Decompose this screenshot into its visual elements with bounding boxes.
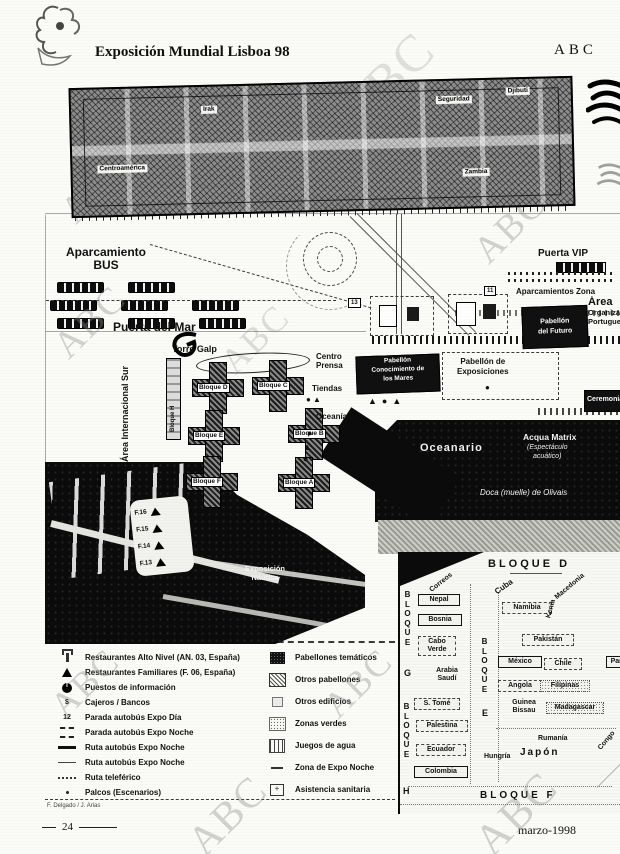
bloque-d-inset-map: BLOQUE D BLOQUE G BLOQUE H BLOQUE E Corr… xyxy=(398,552,620,814)
country-macedonia: Macedonia xyxy=(551,570,588,603)
bloque-c-label: Bloque C xyxy=(257,381,290,391)
footer-dash xyxy=(42,827,56,828)
bus-stop-night-icon xyxy=(57,727,77,738)
info-circle-icon: ● xyxy=(485,383,490,392)
bloque-d-label: Bloque D xyxy=(197,383,230,393)
country-ecuador: Ecuador xyxy=(416,744,466,756)
country-palestina: Palestina xyxy=(416,720,468,732)
inset-street xyxy=(496,728,616,729)
acqua-matrix-label: Acqua Matrix xyxy=(523,432,576,442)
pabellon-exposiciones-line2: Exposiciones xyxy=(457,367,509,377)
bloque-d-title: BLOQUE D xyxy=(488,558,570,570)
other-building-icon xyxy=(267,697,287,707)
country-madagascar: Madagascar xyxy=(546,702,604,714)
bloque-letter-e: E xyxy=(482,708,488,718)
info-circle-icon: ● xyxy=(307,428,312,438)
restaurant-triangle-icon xyxy=(154,540,165,549)
bloque-c-building: Bloque C xyxy=(252,360,304,412)
organizacion-label: Área Organización Portuguesa xyxy=(588,296,620,326)
organizacion-line2: Organización xyxy=(588,308,620,317)
bloque-vertical-lower: BLOQUE xyxy=(402,702,411,759)
north-area-inner-border xyxy=(83,87,561,207)
shore-texture xyxy=(378,520,620,554)
info-circle-icon: ● xyxy=(303,454,308,464)
country-colombia: Colombia xyxy=(414,766,468,778)
building-dark xyxy=(483,304,496,319)
country-panama: Panamá xyxy=(606,656,620,668)
bloque-vertical-left: BLOQUE xyxy=(403,590,412,647)
ceremonias-box: Ceremonias xyxy=(584,390,620,412)
building-dark xyxy=(407,307,419,321)
bloque-letter-h: H xyxy=(403,786,410,796)
map-label-djibuti: Djibuti xyxy=(506,86,530,95)
centro-prensa-label: Centro Prensa xyxy=(316,352,343,370)
nautica-line1: Exposición xyxy=(245,564,285,573)
expo98-logo-faint xyxy=(596,160,620,204)
map-label-seguridad: Seguridad xyxy=(436,95,472,104)
parking-row xyxy=(508,279,614,282)
country-rumania: Rumanía xyxy=(536,734,570,744)
legend-label: Zona de Expo Noche xyxy=(295,763,374,772)
country-mexico: México xyxy=(498,656,542,668)
bloque-e-building: Bloque E xyxy=(188,410,240,462)
country-correos: Correos xyxy=(426,570,456,597)
thick-route-line-icon xyxy=(57,746,77,750)
pier-row: F.13 xyxy=(139,550,191,572)
legend-row: Zonas verdes xyxy=(267,717,347,730)
pabellon-conocimiento-box: Pabellón Conocimiento de los Mares xyxy=(355,354,440,395)
bloque-h-strip-label: Bloque H xyxy=(170,406,176,432)
bloque-a-label: Bloque A xyxy=(283,478,315,488)
oceania-label: Oceanía xyxy=(316,412,347,421)
pabellon-futuro-box: Pabellón del Futuro xyxy=(521,305,588,349)
pabellon-exposiciones-outline: Pabellón de Exposiciones ● xyxy=(442,352,559,400)
acqua-matrix-sub1: (Espectáculo xyxy=(527,444,567,451)
expo98-logo xyxy=(586,78,620,136)
water-games-icon xyxy=(267,739,287,753)
centro-prensa-line1: Centro xyxy=(316,352,343,361)
bloque-d-underline xyxy=(510,573,562,574)
legend-row: Ruta teleférico xyxy=(57,771,141,784)
country-hungria: Hungría xyxy=(482,752,512,762)
tiendas-label: Tiendas xyxy=(312,384,342,393)
newspaper-page: ABC ABC ABC ABC ABC ABC ABC ABC ABC Expo… xyxy=(0,0,620,854)
pabellon-conocimiento-line3: los Mares xyxy=(357,373,439,385)
legend-label: Ruta autobús Expo Noche xyxy=(85,758,185,767)
map-credit: F. Delgado / J. Arias xyxy=(47,803,100,809)
abc-masthead: ABC xyxy=(554,42,597,59)
torre-galp-label: Torre Galp xyxy=(172,344,217,354)
inset-street xyxy=(470,584,471,784)
bloque-f-label: Bloque F xyxy=(191,477,223,487)
country-pakistan: Pakistán xyxy=(522,634,574,646)
legend-label: Ruta autobús Expo Noche xyxy=(85,743,185,752)
page-number: 24 xyxy=(62,821,73,833)
country-filipinas: Filipinas xyxy=(540,680,590,692)
legend-label: Asistencia sanitaria xyxy=(295,785,370,794)
road-number-box: 13 xyxy=(348,298,361,308)
restaurant-triangle-icon: ▲ xyxy=(303,442,312,452)
legend-row: Ruta autobús Expo Noche xyxy=(57,756,185,769)
acqua-matrix-sub2: acuático) xyxy=(533,453,561,460)
country-arabia-saudi: Arabia Saudí xyxy=(424,666,470,684)
exposicion-nautica-label: Exposición Náutica xyxy=(245,564,285,582)
corner-stamp xyxy=(30,2,92,74)
map-label-irak: Irak xyxy=(201,105,217,113)
restaurant-triangle-icon xyxy=(150,507,161,516)
pabellon-exposiciones-line1: Pabellón de xyxy=(457,357,509,367)
country-japon: Japón xyxy=(518,748,561,758)
pier-f15-label: F.15 xyxy=(136,525,149,533)
page-title: Exposición Mundial Lisboa 98 xyxy=(95,44,290,61)
bloque-e-label: Bloque E xyxy=(193,431,225,441)
country-nepal: Nepal xyxy=(418,594,460,606)
area-internacional-sur-label: Área Internacional Sur xyxy=(120,366,130,462)
cable-car-route-icon xyxy=(57,777,77,779)
restaurant-triangle-icon xyxy=(152,523,163,532)
bloque-letter-g: G xyxy=(404,668,411,678)
organizacion-line1: Área xyxy=(588,296,620,308)
map-label-centroamerica: Centroamérica xyxy=(97,164,147,173)
legend-row: Asistencia sanitaria xyxy=(267,783,370,796)
roundabout-arc xyxy=(286,222,374,310)
legend-row: Palcos (Escenarios) xyxy=(57,786,161,799)
thin-route-line-icon xyxy=(57,762,77,764)
legend-label: Parada autobús Expo Noche xyxy=(85,728,193,737)
thematic-pavilion-icon xyxy=(267,652,287,664)
info-circle-icon: ● ▲ xyxy=(306,395,321,404)
legend-row: Juegos de agua xyxy=(267,739,355,752)
parking-row xyxy=(508,272,614,275)
restaurant-symbols-row: ▲●▲ xyxy=(368,396,406,406)
north-area-map: Irak Centroamérica Seguridad Djibuti Zam… xyxy=(68,76,575,218)
country-cabo-verde: Cabo Verde xyxy=(418,636,456,656)
pier xyxy=(163,594,366,635)
map-label-zambia: Zambia xyxy=(463,168,490,177)
road-number-box: 11 xyxy=(484,286,496,296)
legend-row: Parada autobús Expo Noche xyxy=(57,726,193,739)
bloque-vertical-mid: BLOQUE xyxy=(480,637,489,694)
centro-prensa-line2: Prensa xyxy=(316,361,343,370)
legend-label: Palcos (Escenarios) xyxy=(85,788,161,797)
legend-label: Ruta teleférico xyxy=(85,773,141,782)
bloque-f-building: Bloque F xyxy=(186,456,238,508)
aparcamientos-zona-label: Aparcamientos Zona xyxy=(516,287,620,296)
bloque-a-building: Bloque A xyxy=(278,457,330,509)
building-outline xyxy=(379,305,397,327)
oceanario-label: Oceanario xyxy=(420,442,483,454)
legend-label: Juegos de agua xyxy=(295,741,355,750)
country-s-tome: S. Tomé xyxy=(414,698,460,710)
organizacion-line3: Portuguesa xyxy=(588,317,620,326)
legend-row: Ruta autobús Expo Noche xyxy=(57,741,185,754)
legend-row: Zona de Expo Noche xyxy=(267,761,374,774)
country-bosnia: Bosnia xyxy=(418,614,462,626)
aparcamiento-bus-label: Aparcamiento BUS xyxy=(50,246,162,272)
bloque-d-building: Bloque D xyxy=(192,362,244,414)
country-angola: Angola xyxy=(498,680,542,692)
country-guinea-bissau: Guinea Bissau xyxy=(502,698,546,716)
puerta-vip-label: Puerta VIP xyxy=(538,248,588,259)
restaurant-icon xyxy=(57,653,77,662)
pier-f13-label: F.13 xyxy=(139,559,152,567)
expo-night-zone-icon xyxy=(267,767,287,769)
country-cuba: Cuba xyxy=(491,576,516,598)
green-zone-icon xyxy=(267,717,287,731)
legend-label: Parada autobús Expo Día xyxy=(85,713,181,722)
nautica-line2: Náutica xyxy=(245,573,285,582)
country-chile: Chile xyxy=(544,658,582,670)
pier-f16-label: F.16 xyxy=(134,508,147,516)
building-outline xyxy=(456,302,476,326)
bus-icon xyxy=(192,300,239,311)
bus-icon xyxy=(128,282,175,293)
stage-dot-icon xyxy=(57,791,77,794)
other-pavilion-icon xyxy=(267,673,287,687)
pabellon-futuro-line2: del Futuro xyxy=(523,326,587,338)
footer-dash xyxy=(79,827,117,828)
page-number-footer: 24 xyxy=(42,821,117,833)
pier-f14-label: F.14 xyxy=(138,542,151,550)
restaurant-triangle-icon xyxy=(156,557,167,566)
aparcamiento-line2: BUS xyxy=(50,259,162,272)
pabellon-exposiciones-label: Pabellón de Exposiciones xyxy=(457,357,509,377)
doca-olivais-label: Doca (muelle) de Olivais xyxy=(480,488,567,497)
restaurant-pier-labels: F.16 F.15 F.14 F.13 xyxy=(129,495,195,577)
country-congo: Congo xyxy=(595,728,619,754)
